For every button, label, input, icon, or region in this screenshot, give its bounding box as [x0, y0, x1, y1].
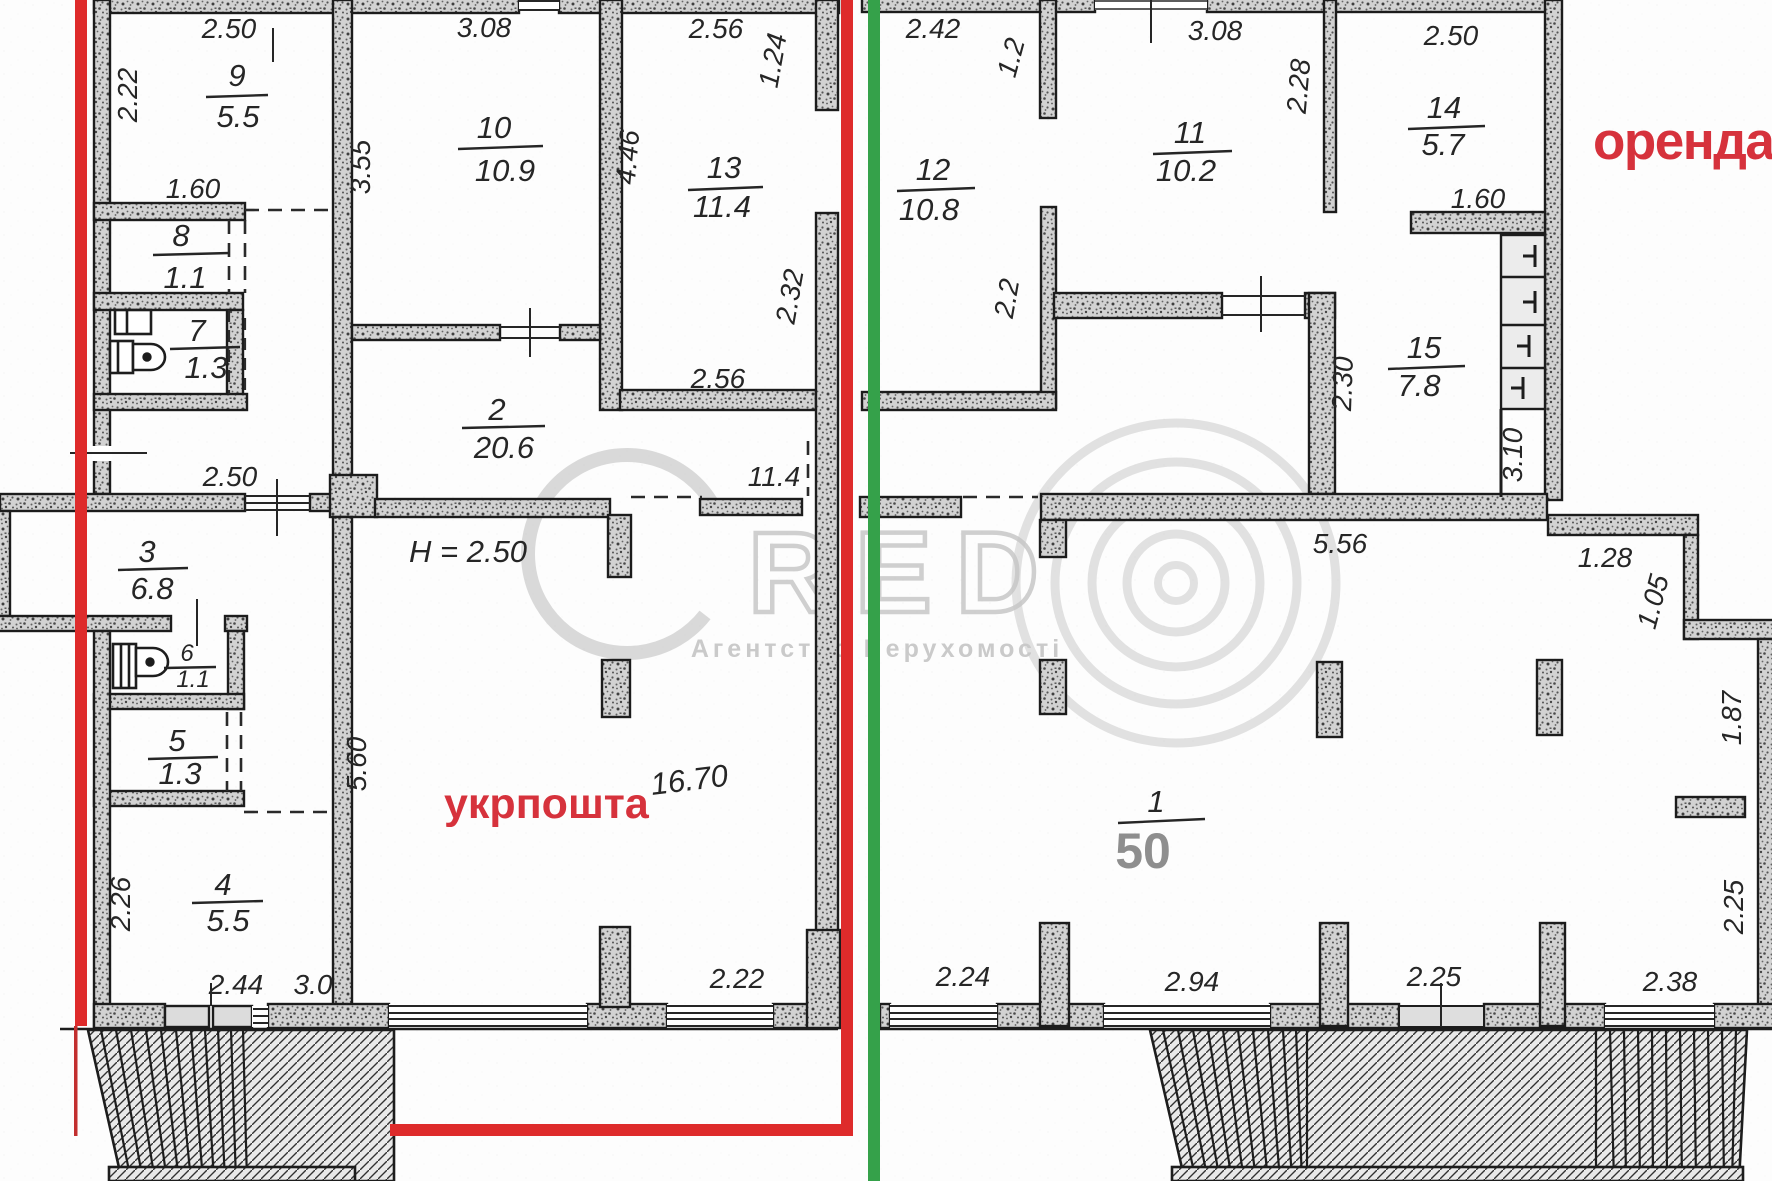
svg-text:2.26: 2.26 [105, 876, 136, 932]
svg-text:10.8: 10.8 [899, 192, 960, 227]
svg-text:1.3: 1.3 [184, 350, 227, 385]
svg-text:5.5: 5.5 [216, 99, 260, 134]
svg-text:3.0: 3.0 [294, 969, 333, 1000]
svg-text:2.38: 2.38 [1642, 966, 1698, 997]
svg-text:2.22: 2.22 [112, 67, 143, 123]
svg-text:2.50: 2.50 [201, 13, 257, 44]
svg-text:8: 8 [172, 218, 190, 253]
svg-text:11: 11 [1174, 115, 1206, 150]
svg-text:2.50: 2.50 [202, 461, 258, 492]
svg-text:2.50: 2.50 [1423, 20, 1479, 51]
svg-text:10: 10 [477, 110, 511, 145]
svg-text:4: 4 [214, 867, 231, 902]
svg-text:5.5: 5.5 [206, 903, 250, 938]
svg-text:6: 6 [180, 640, 194, 667]
svg-text:2.22: 2.22 [709, 963, 765, 994]
svg-text:7: 7 [188, 313, 207, 348]
svg-text:2.28: 2.28 [1281, 57, 1317, 115]
svg-text:2.25: 2.25 [1718, 879, 1749, 935]
svg-text:5.7: 5.7 [1421, 127, 1466, 162]
svg-text:1.87: 1.87 [1716, 689, 1747, 745]
svg-text:2.42: 2.42 [905, 13, 961, 44]
svg-text:5.60: 5.60 [341, 736, 372, 791]
svg-text:2.94: 2.94 [1164, 966, 1220, 997]
svg-text:2: 2 [487, 392, 505, 427]
svg-text:1.60: 1.60 [1451, 183, 1506, 214]
svg-text:7.8: 7.8 [1397, 368, 1441, 403]
svg-text:оренда: оренда [1593, 112, 1772, 171]
svg-text:6.8: 6.8 [130, 571, 174, 606]
svg-text:2.24: 2.24 [935, 961, 991, 992]
svg-text:3.08: 3.08 [457, 12, 512, 43]
svg-text:1.28: 1.28 [1578, 542, 1633, 573]
svg-text:2.56: 2.56 [688, 13, 744, 44]
svg-text:50: 50 [1115, 823, 1171, 879]
svg-text:11.4: 11.4 [693, 189, 751, 224]
svg-text:1.3: 1.3 [158, 756, 201, 791]
svg-text:15: 15 [1407, 330, 1442, 365]
svg-text:3.55: 3.55 [345, 139, 376, 194]
svg-text:13: 13 [707, 150, 741, 185]
svg-text:2.30: 2.30 [1326, 355, 1359, 412]
svg-text:1.1: 1.1 [163, 260, 206, 295]
svg-text:1.1: 1.1 [176, 666, 209, 693]
svg-text:1: 1 [1147, 784, 1164, 819]
svg-text:укрпошта: укрпошта [444, 780, 650, 828]
svg-text:H = 2.50: H = 2.50 [409, 534, 527, 569]
svg-text:10.9: 10.9 [475, 153, 535, 188]
svg-text:5.56: 5.56 [1313, 528, 1368, 559]
svg-text:12: 12 [916, 152, 950, 187]
svg-text:11.4: 11.4 [748, 461, 800, 492]
svg-text:2.25: 2.25 [1406, 961, 1462, 992]
svg-text:20.6: 20.6 [473, 430, 535, 465]
svg-text:3.10: 3.10 [1497, 427, 1528, 482]
svg-text:4.46: 4.46 [610, 128, 646, 185]
svg-text:2.44: 2.44 [208, 969, 264, 1000]
svg-text:5: 5 [168, 723, 186, 758]
svg-text:9: 9 [228, 58, 245, 93]
svg-text:3.08: 3.08 [1188, 15, 1243, 46]
svg-text:3: 3 [138, 534, 155, 569]
svg-text:1.60: 1.60 [166, 173, 221, 204]
svg-text:14: 14 [1427, 90, 1461, 125]
svg-text:2.56: 2.56 [690, 363, 746, 394]
svg-text:10.2: 10.2 [1156, 153, 1216, 188]
